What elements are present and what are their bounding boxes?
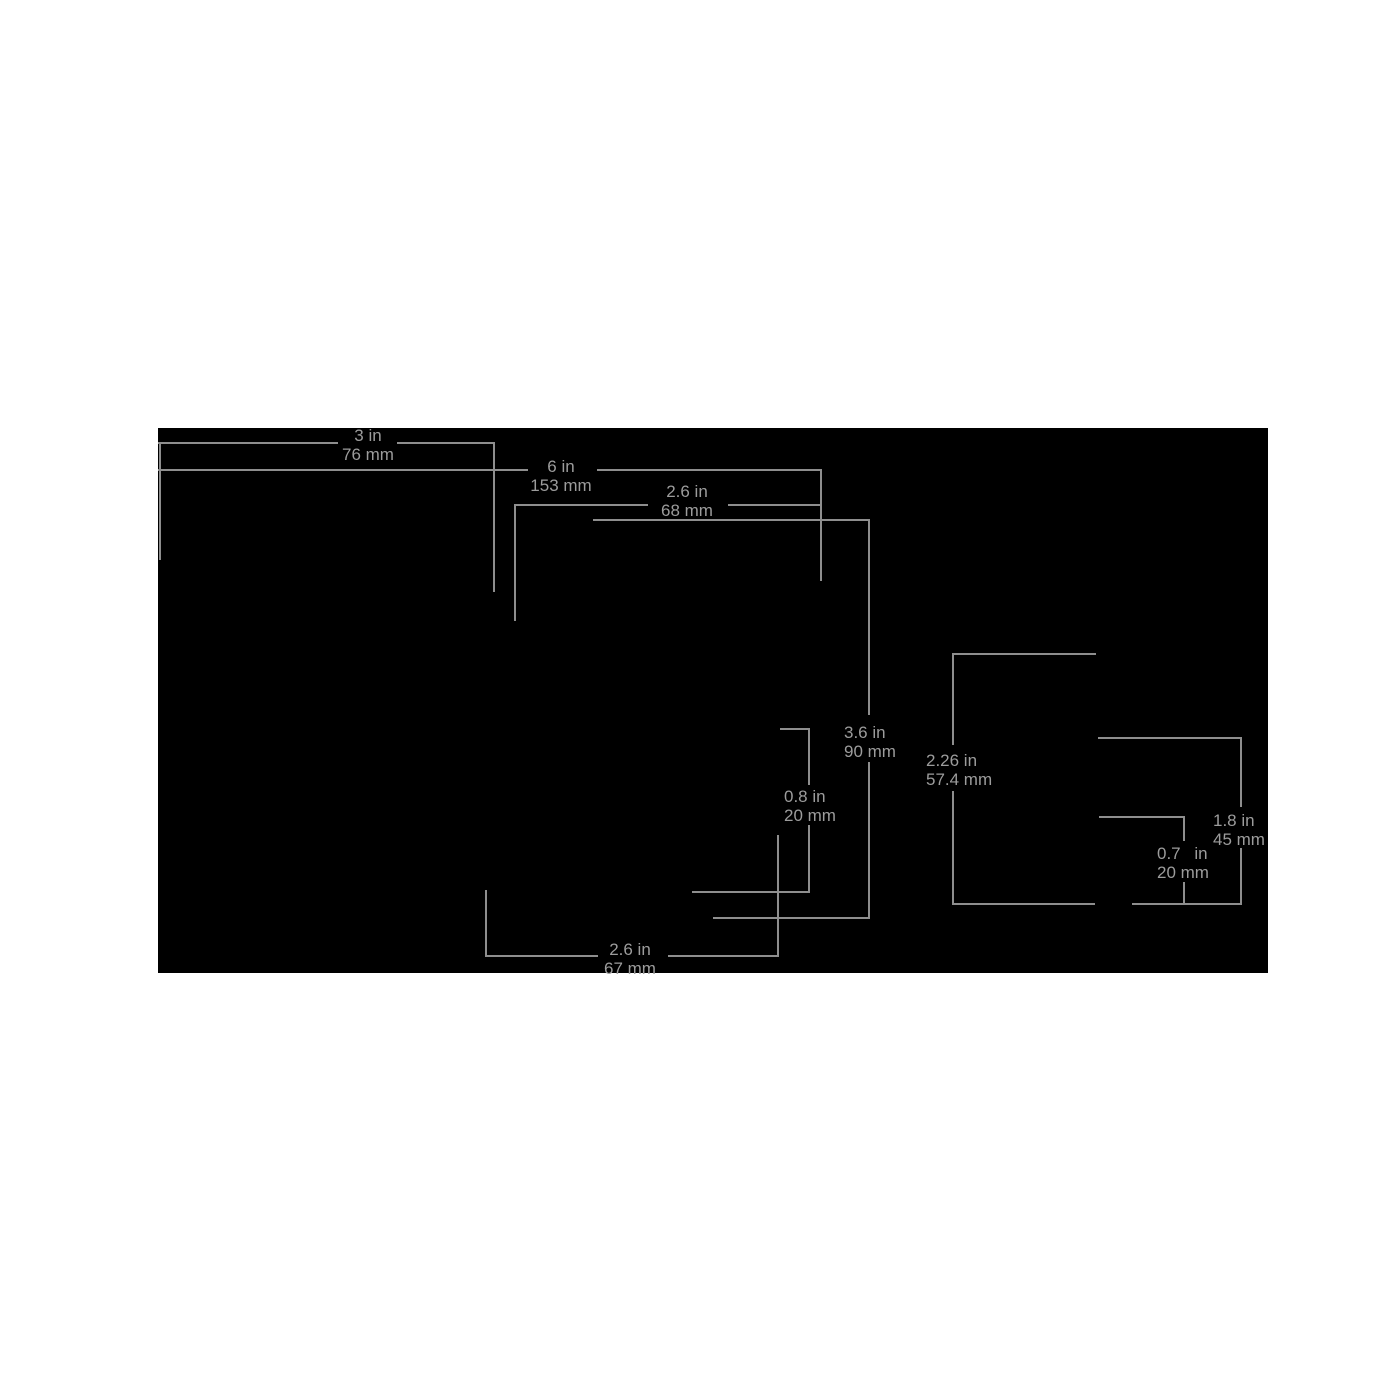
dim-ext-bottom-width-left	[485, 890, 487, 957]
dim-full-width-mm: 153 mm	[501, 476, 621, 495]
dim-front-height-mm: 90 mm	[844, 742, 896, 761]
dim-side-lower-inches: 1.8 in	[1213, 811, 1265, 830]
dim-front-height-inches: 3.6 in	[844, 723, 896, 742]
dim-line-side-lower-upper	[1240, 737, 1242, 807]
dim-top-width-inches: 3 in	[308, 426, 428, 445]
dim-label-side-lower-height: 1.8 in 45 mm	[1213, 811, 1265, 849]
dim-notch-inches: 0.8 in	[784, 787, 836, 806]
dim-ext-side-lower-bottom	[1132, 903, 1242, 905]
dim-line-side-lower-lower	[1240, 848, 1242, 905]
dim-label-notch-height: 0.8 in 20 mm	[784, 787, 836, 825]
dim-label-side-depth: 0.7 in 20 mm	[1157, 844, 1209, 882]
dim-ext-notch-top	[780, 728, 810, 730]
dim-line-notch-upper	[808, 728, 810, 785]
dim-line-side-depth-upper	[1183, 816, 1185, 841]
dim-line-side-depth-lower	[1183, 882, 1185, 905]
dimension-diagram: 3 in 76 mm 6 in 153 mm 2.6 in 68 mm 3.6 …	[0, 0, 1400, 1400]
dim-label-upper-inner-width: 2.6 in 68 mm	[627, 482, 747, 520]
dim-ext-side-height-bottom	[952, 903, 1095, 905]
dim-bottom-width-mm: 67 mm	[570, 959, 690, 978]
dim-ext-side-lower-top	[1098, 737, 1242, 739]
dim-side-depth-mm: 20 mm	[1157, 863, 1209, 882]
dim-notch-mm: 20 mm	[784, 806, 836, 825]
dim-ext-bottom-width-right	[777, 835, 779, 957]
dim-line-front-height-lower	[868, 762, 870, 919]
dim-ext-side-depth-top	[1099, 816, 1185, 818]
dim-ext-top-width-left	[159, 442, 161, 560]
dim-ext-upper-inner-left	[514, 504, 516, 621]
dim-label-front-height: 3.6 in 90 mm	[844, 723, 896, 761]
dim-ext-side-height-top	[952, 653, 1096, 655]
dim-ext-top-width-right	[493, 442, 495, 592]
dim-top-width-mm: 76 mm	[308, 445, 428, 464]
dim-line-side-height-upper	[952, 653, 954, 745]
dim-label-side-height: 2.26 in 57.4 mm	[926, 751, 992, 789]
dim-ext-front-height-bottom	[713, 917, 870, 919]
dim-label-full-width: 6 in 153 mm	[501, 457, 621, 495]
dim-label-top-width: 3 in 76 mm	[308, 426, 428, 464]
dim-side-depth-inches: 0.7 in	[1157, 844, 1209, 863]
dim-bottom-width-inches: 2.6 in	[570, 940, 690, 959]
dim-line-front-height-upper	[868, 519, 870, 715]
dim-upper-inner-inches: 2.6 in	[627, 482, 747, 501]
dim-full-width-inches: 6 in	[501, 457, 621, 476]
dim-ext-full-width-right	[820, 469, 822, 581]
dim-line-full-width-left	[158, 469, 528, 471]
dim-side-height-inches: 2.26 in	[926, 751, 992, 770]
dim-side-lower-mm: 45 mm	[1213, 830, 1265, 849]
dim-label-bottom-width: 2.6 in 67 mm	[570, 940, 690, 978]
dim-line-side-height-lower	[952, 791, 954, 905]
dim-line-notch-lower	[808, 825, 810, 893]
dim-upper-inner-mm: 68 mm	[627, 501, 747, 520]
dim-ext-notch-bottom	[692, 891, 810, 893]
dim-line-full-width-right	[597, 469, 821, 471]
dim-side-height-mm: 57.4 mm	[926, 770, 992, 789]
